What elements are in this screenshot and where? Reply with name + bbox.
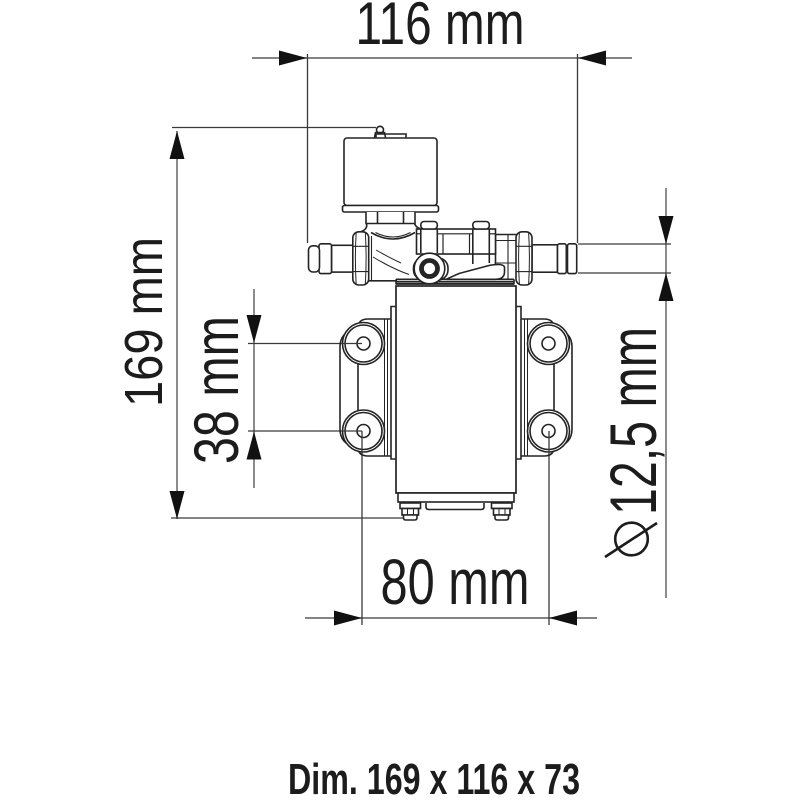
svg-text:80 mm: 80 mm	[381, 546, 530, 618]
svg-text:116 mm: 116 mm	[356, 0, 525, 57]
svg-text:169 mm: 169 mm	[114, 237, 174, 407]
svg-text:Dim. 169 x 116 x 73: Dim. 169 x 116 x 73	[288, 755, 580, 800]
svg-text:12,5 mm: 12,5 mm	[596, 327, 670, 515]
svg-text:38 mm: 38 mm	[182, 316, 252, 464]
